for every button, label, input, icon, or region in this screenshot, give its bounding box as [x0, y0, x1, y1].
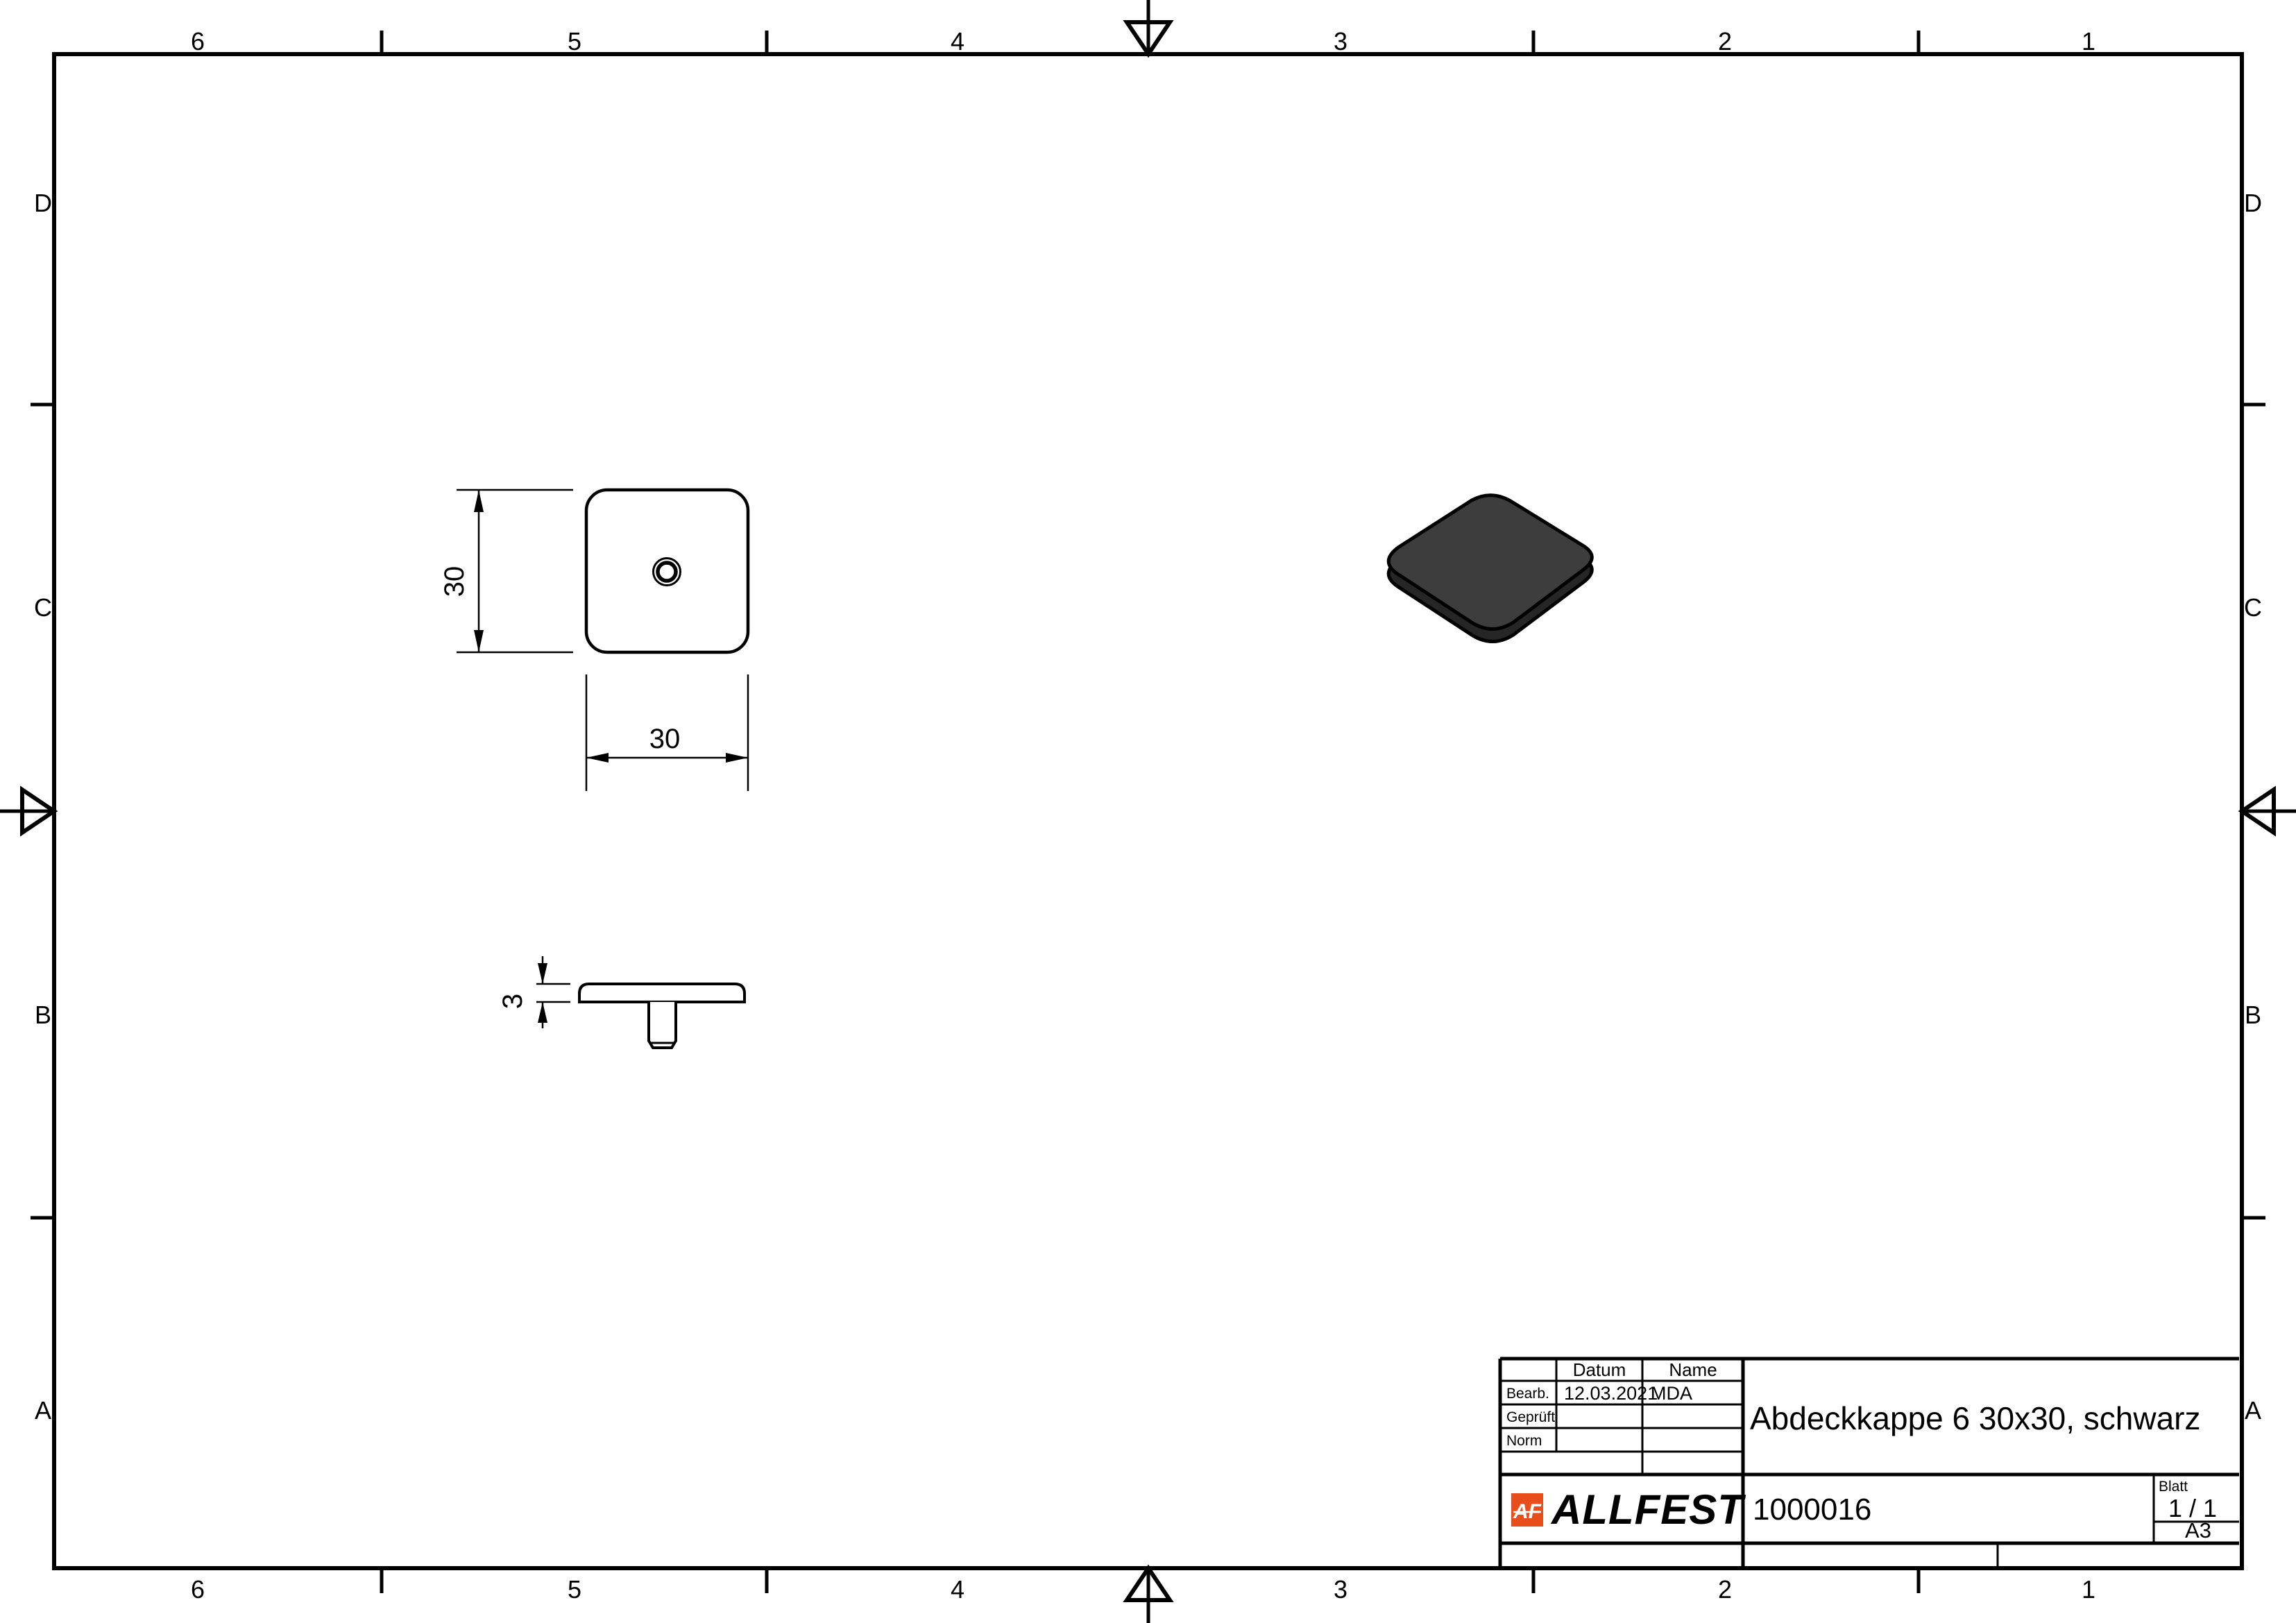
top-view-outline	[586, 490, 748, 652]
zone-col-label: 6	[191, 27, 205, 56]
arrowhead-down	[538, 963, 547, 984]
row-label-norm: Norm	[1506, 1433, 1542, 1449]
frame-border	[54, 54, 2242, 1568]
zone-col-label: 2	[1718, 1575, 1732, 1604]
zone-col-label: 1	[2082, 1575, 2095, 1604]
zone-row-label: A	[35, 1396, 51, 1425]
top-view: 30 30	[439, 490, 748, 791]
part-number: 1000016	[1753, 1493, 1871, 1527]
zone-col-label: 6	[191, 1575, 205, 1604]
bearb-datum-value: 12.03.2021	[1564, 1383, 1658, 1404]
title-block: Datum Name Bearb. 12.03.2021 MDA Geprüft…	[1500, 1359, 2239, 1568]
zone-col-label: 4	[951, 1575, 964, 1604]
zone-row-label: C	[34, 593, 52, 622]
zone-row-label: A	[2245, 1396, 2261, 1425]
arrowhead-up	[474, 490, 484, 512]
logo-brand-text: ALLFEST	[1550, 1486, 1746, 1533]
centering-mark-right	[2242, 790, 2296, 833]
zone-col-label: 5	[568, 1575, 581, 1604]
dim-value-width: 30	[649, 724, 681, 754]
zone-row-label: B	[35, 1001, 51, 1029]
col-header-datum: Datum	[1573, 1359, 1626, 1380]
zone-col-label: 5	[568, 27, 581, 56]
side-view-pin	[649, 1002, 676, 1048]
iso-view	[1388, 495, 1592, 642]
col-header-name: Name	[1669, 1359, 1717, 1380]
side-view: 3	[498, 956, 745, 1048]
format-value: A3	[2185, 1518, 2211, 1543]
zone-row-label: C	[2244, 593, 2262, 622]
bearb-name-value: MDA	[1651, 1383, 1692, 1404]
drawing-canvas: 6 5 4 3 2 1 6 5 4 3 2 1 D C B A D C B A	[0, 0, 2296, 1623]
blatt-label: Blatt	[2159, 1479, 2188, 1495]
zone-col-label: 3	[1334, 27, 1347, 56]
centering-mark-left	[0, 790, 54, 833]
dim-value-height: 30	[439, 566, 470, 597]
arrowhead-right	[726, 753, 748, 763]
zone-row-label: B	[2245, 1001, 2261, 1029]
zone-col-label: 4	[951, 27, 964, 56]
iso-part-top-face	[1388, 495, 1592, 629]
arrowhead-left	[586, 753, 609, 763]
dimension-height	[457, 490, 573, 652]
zone-row-label: D	[2244, 189, 2262, 217]
arrowhead-up	[538, 1002, 547, 1023]
allfest-logo: AF ALLFEST	[1511, 1486, 1746, 1533]
row-label-bearb: Bearb.	[1506, 1386, 1549, 1402]
arrowhead-down	[474, 630, 484, 652]
zone-col-label: 1	[2082, 27, 2095, 56]
zone-row-label: D	[34, 189, 52, 217]
zone-col-label: 2	[1718, 27, 1732, 56]
drawing-title: Abdeckkappe 6 30x30, schwarz	[1750, 1400, 2201, 1436]
dim-value-thickness: 3	[498, 994, 528, 1009]
row-label-geprueft: Geprüft	[1506, 1409, 1555, 1425]
zone-col-label: 3	[1334, 1575, 1347, 1604]
centering-mark-top	[1127, 0, 1170, 54]
centering-mark-bottom	[1127, 1568, 1170, 1623]
side-view-cap-plate	[579, 984, 745, 1002]
drawing-sheet: 6 5 4 3 2 1 6 5 4 3 2 1 D C B A D C B A	[0, 0, 2296, 1623]
